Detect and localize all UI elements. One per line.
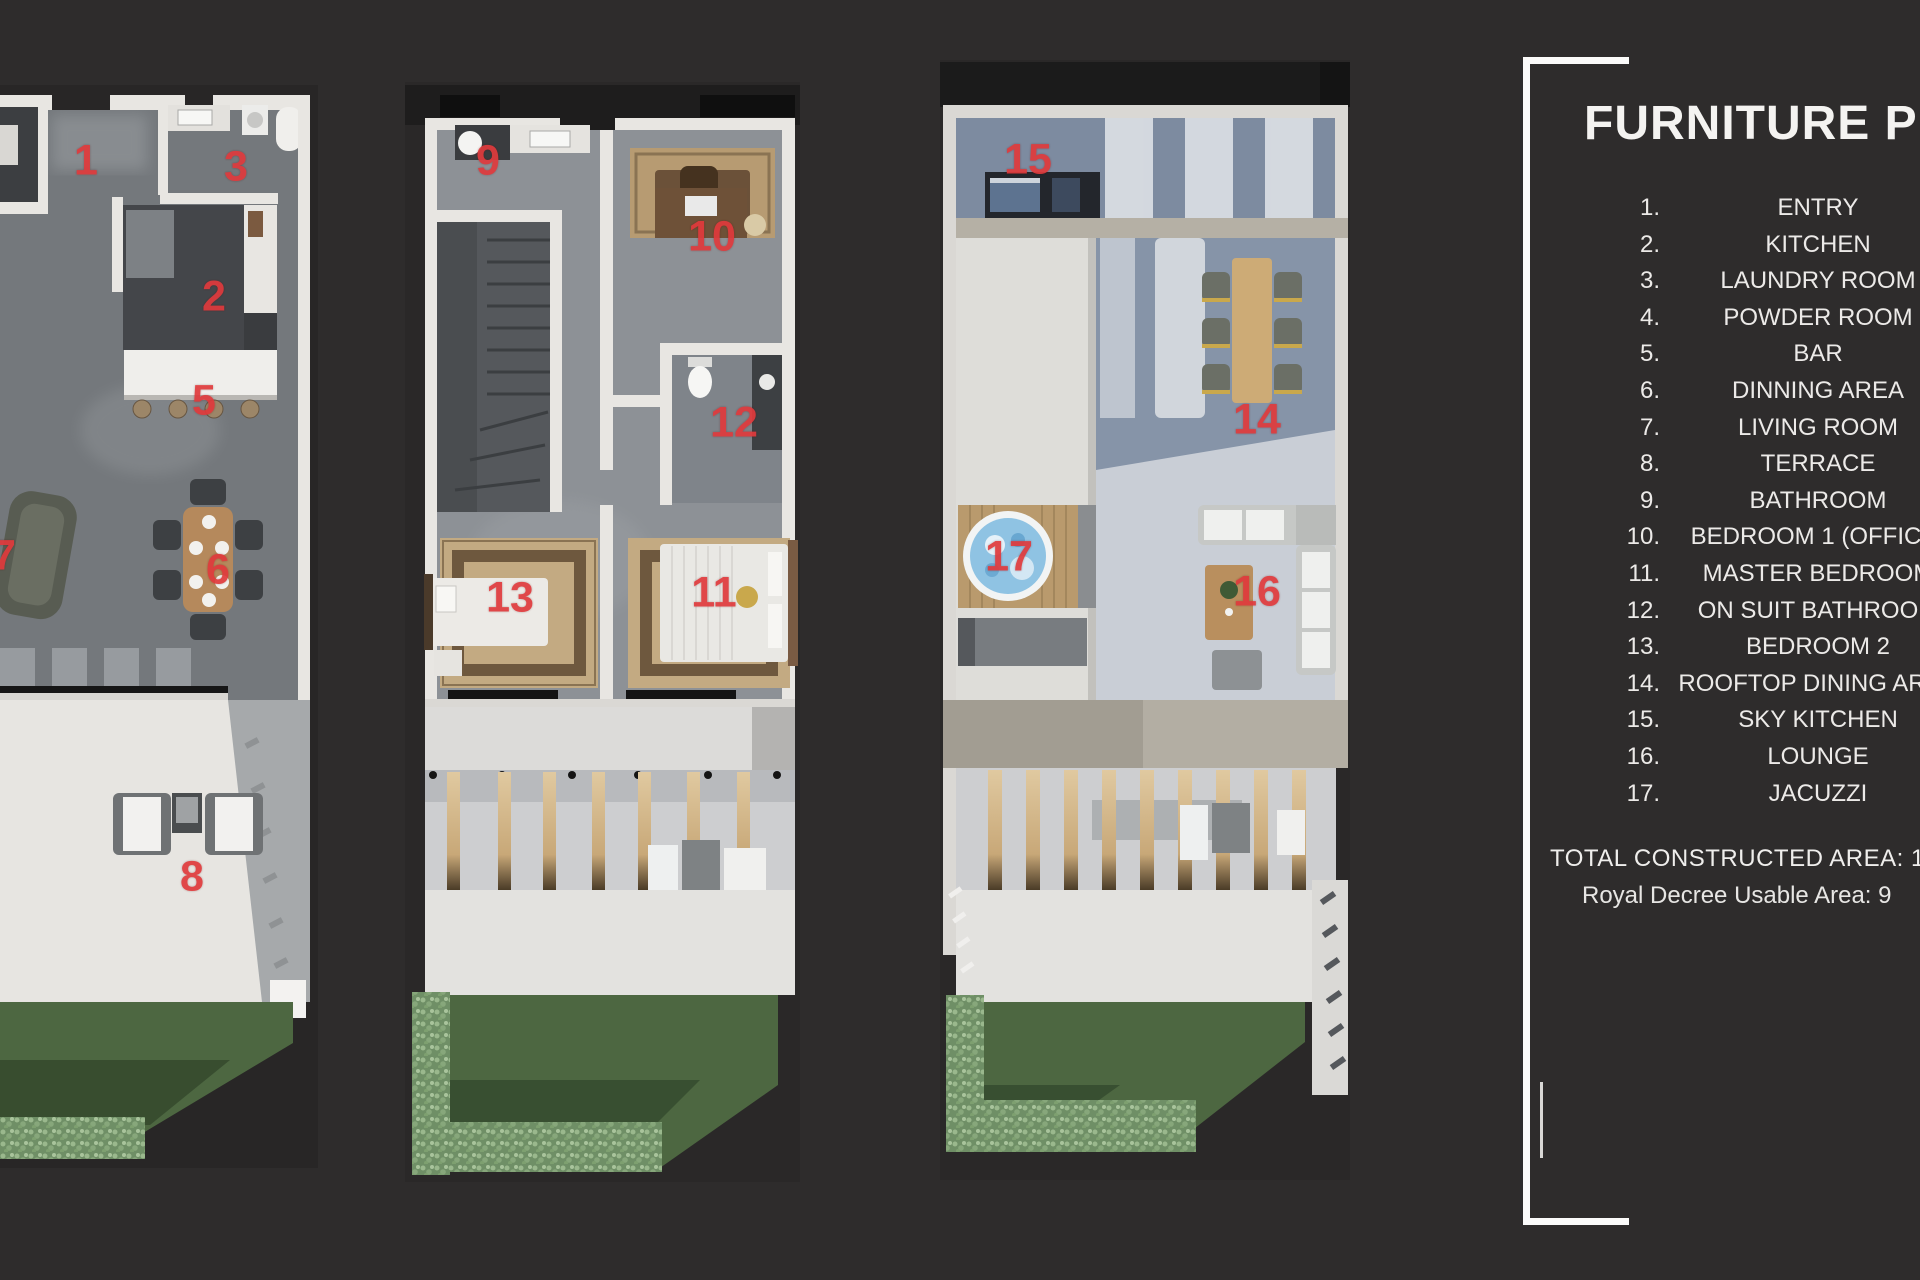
legend-item: 5.BAR [1555, 336, 1920, 373]
legend-bracket-bottom-arm [1523, 1218, 1629, 1225]
legend-item: 14.ROOFTOP DINING AREA [1555, 666, 1920, 703]
plan-marker-14: 14 [1233, 399, 1281, 442]
legend-item-number: 14. [1555, 666, 1660, 703]
legend-tick-mark [1540, 1082, 1543, 1158]
legend-item-label: LIVING ROOM [1668, 410, 1920, 447]
plan-marker-13: 13 [486, 577, 534, 620]
plan-marker-1: 1 [74, 140, 98, 183]
plan-marker-9: 9 [476, 140, 500, 183]
plan-marker-12: 12 [710, 402, 758, 445]
plan-marker-16: 16 [1233, 571, 1281, 614]
legend-bracket-top-arm [1523, 57, 1629, 64]
legend-item-label: ROOFTOP DINING AREA [1668, 666, 1920, 703]
plan-marker-7: 7 [0, 535, 16, 578]
jacuzzi [958, 505, 1096, 666]
legend-total-area: TOTAL CONSTRUCTED AREA: 1 [1550, 845, 1920, 873]
legend-item-label: BAR [1668, 336, 1920, 373]
legend-item: 12.ON SUIT BATHROOM [1555, 593, 1920, 630]
legend-item-label: SKY KITCHEN [1668, 702, 1920, 739]
entry-closet [0, 107, 48, 214]
legend-item-number: 2. [1555, 227, 1660, 264]
legend-item: 3.LAUNDRY ROOM [1555, 263, 1920, 300]
legend-item-number: 6. [1555, 373, 1660, 410]
legend-bracket-vertical [1523, 57, 1530, 1225]
page: 132576891012131115141716 FURNITURE PLAN … [0, 0, 1920, 1280]
legend-item-label: KITCHEN [1668, 227, 1920, 264]
legend-item-number: 4. [1555, 300, 1660, 337]
legend-item-label: ON SUIT BATHROOM [1668, 593, 1920, 630]
plan-marker-2: 2 [202, 276, 226, 319]
legend-item-number: 16. [1555, 739, 1660, 776]
floor-plan-rooftop [940, 60, 1350, 1180]
plan-marker-3: 3 [224, 146, 248, 189]
legend-item: 6.DINNING AREA [1555, 373, 1920, 410]
legend-item-number: 7. [1555, 410, 1660, 447]
legend-usable-area: Royal Decree Usable Area: 9 [1582, 882, 1892, 910]
legend-item-label: TERRACE [1668, 446, 1920, 483]
legend-item-number: 15. [1555, 702, 1660, 739]
legend-item: 2.KITCHEN [1555, 227, 1920, 264]
legend-item-number: 13. [1555, 629, 1660, 666]
plan-marker-5: 5 [192, 380, 216, 423]
legend-item-label: MASTER BEDROOM [1668, 556, 1920, 593]
legend-item-number: 9. [1555, 483, 1660, 520]
rooftop-dining-table [1202, 258, 1302, 403]
plan-marker-8: 8 [180, 856, 204, 899]
floor-plan-first [405, 82, 800, 1182]
legend-item-label: BATHROOM [1668, 483, 1920, 520]
legend-item: 15.SKY KITCHEN [1555, 702, 1920, 739]
legend-item-number: 8. [1555, 446, 1660, 483]
legend-item-number: 12. [1555, 593, 1660, 630]
legend-item: 9.BATHROOM [1555, 483, 1920, 520]
legend-item-number: 11. [1555, 556, 1660, 593]
legend-item: 13.BEDROOM 2 [1555, 629, 1920, 666]
legend-item-number: 3. [1555, 263, 1660, 300]
legend-item-label: BEDROOM 2 [1668, 629, 1920, 666]
legend-title: FURNITURE PLAN [1584, 96, 1920, 151]
legend-item: 16.LOUNGE [1555, 739, 1920, 776]
legend-list: 1.ENTRY2.KITCHEN3.LAUNDRY ROOM4.POWDER R… [1555, 190, 1920, 812]
staircase [437, 222, 562, 512]
legend-item-number: 10. [1555, 519, 1660, 556]
legend-item-number: 5. [1555, 336, 1660, 373]
pergola-first [425, 770, 795, 890]
legend-item: 10.BEDROOM 1 (OFFICE) [1555, 519, 1920, 556]
plan-marker-11: 11 [691, 572, 736, 615]
legend-item-number: 17. [1555, 776, 1660, 813]
legend-item-label: JACUZZI [1668, 776, 1920, 813]
legend-item: 4.POWDER ROOM [1555, 300, 1920, 337]
plan-marker-15: 15 [1004, 139, 1052, 182]
legend-item: 1.ENTRY [1555, 190, 1920, 227]
legend-item: 8.TERRACE [1555, 446, 1920, 483]
legend-item-label: DINNING AREA [1668, 373, 1920, 410]
legend-item-label: POWDER ROOM [1668, 300, 1920, 337]
plan-marker-17: 17 [985, 536, 1033, 579]
floor-plan-ground [0, 85, 318, 1168]
legend-item-label: LOUNGE [1668, 739, 1920, 776]
legend-item-label: BEDROOM 1 (OFFICE) [1668, 519, 1920, 556]
plan-marker-10: 10 [688, 216, 736, 259]
legend-item: 17.JACUZZI [1555, 776, 1920, 813]
legend-item-label: LAUNDRY ROOM [1668, 263, 1920, 300]
legend-item: 11.MASTER BEDROOM [1555, 556, 1920, 593]
legend-item-number: 1. [1555, 190, 1660, 227]
plan-marker-6: 6 [206, 549, 230, 592]
kitchen-area [112, 197, 277, 350]
legend-item-label: ENTRY [1668, 190, 1920, 227]
pergola-rooftop [956, 768, 1336, 890]
legend-item: 7.LIVING ROOM [1555, 410, 1920, 447]
